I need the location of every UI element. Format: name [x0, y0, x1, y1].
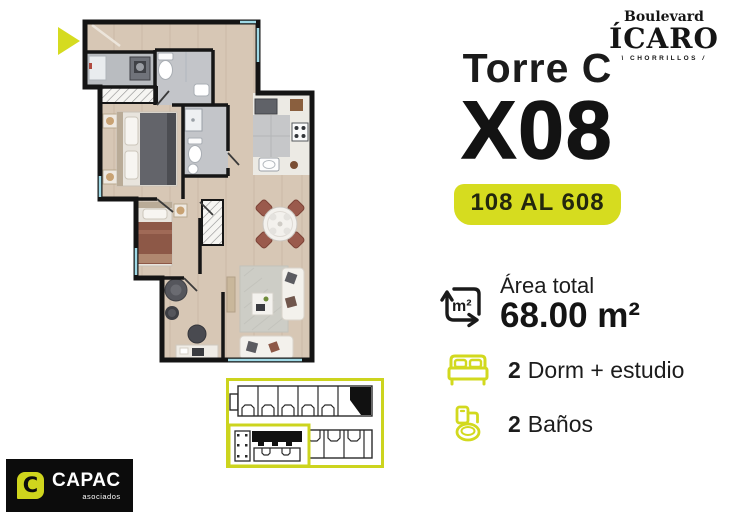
bedrooms-count: 2: [508, 357, 521, 383]
capac-logo-icon: C: [17, 472, 44, 499]
sink: [194, 84, 209, 96]
kitchen: [253, 93, 312, 175]
bed-icon: [446, 352, 490, 388]
bathrooms-row: 2Baños: [444, 404, 593, 444]
keyplan-inset: [229, 425, 309, 466]
laundry-room: [85, 52, 155, 87]
cutting-board: [290, 99, 303, 111]
capac-name: CAPAC: [52, 471, 121, 490]
kitchen-sink: [259, 158, 279, 171]
keyplan-graphic: [226, 378, 384, 468]
bathrooms-label: Baños: [528, 411, 593, 437]
capac-initial: C: [23, 475, 38, 496]
area-row: m² Área total 68.00 m²: [438, 274, 640, 335]
sink: [188, 164, 198, 174]
plant: [290, 161, 298, 169]
bedrooms-label: Dorm + estudio: [528, 357, 685, 383]
district-mark-right: /: [702, 55, 706, 62]
floorplan-graphic: [76, 14, 320, 370]
unit-range-badge: 108 AL 608: [454, 184, 620, 225]
bathroom-2: [183, 105, 228, 176]
area-m2-icon: m²: [438, 280, 486, 328]
bathrooms-count: 2: [508, 411, 521, 437]
unit-code: X08: [420, 93, 655, 168]
fridge: [255, 99, 277, 114]
area-label: Área total: [500, 274, 640, 298]
area-value: 68.00 m²: [500, 298, 640, 335]
closet-hatched: [100, 87, 157, 103]
toilet: [189, 146, 202, 163]
stove: [292, 123, 308, 141]
unit-title-block: Torre C X08 108 AL 608: [420, 46, 655, 225]
flyer-page: Boulevard ÍCARO \ CHORRILLOS / Torre C X…: [0, 0, 730, 516]
desk-chair: [188, 325, 206, 343]
tv-console: [227, 277, 235, 312]
toilet-icon: [453, 404, 483, 444]
toilet: [159, 61, 173, 80]
capac-sub: asociados: [82, 492, 120, 501]
bedrooms-row: 2Dorm + estudio: [444, 352, 684, 388]
svg-text:m²: m²: [452, 298, 472, 315]
capac-logo: C CAPAC asociados: [6, 459, 133, 512]
